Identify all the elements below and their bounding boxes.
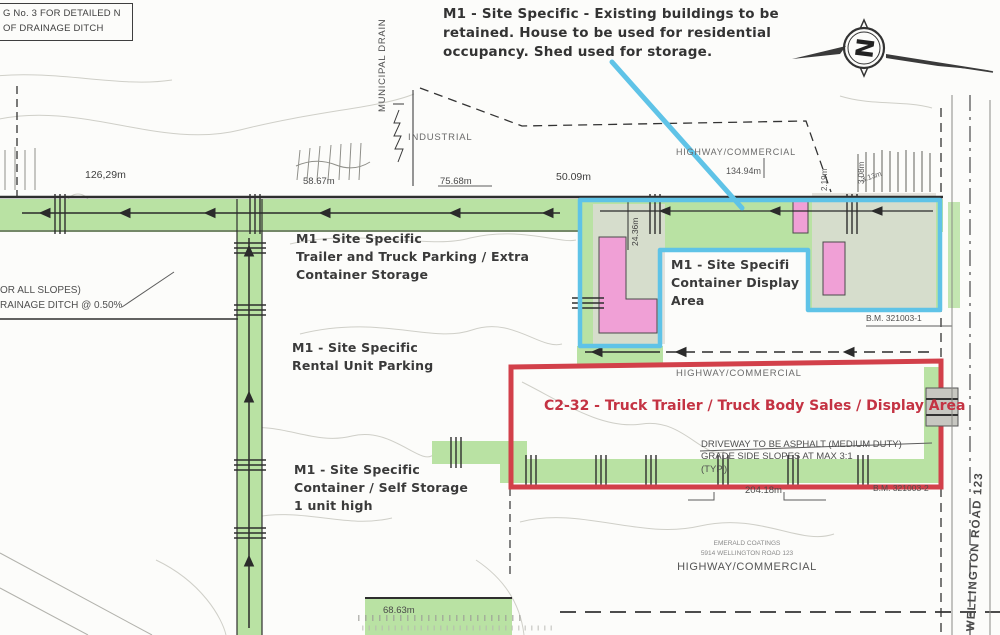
zone-self-storage-label: M1 - Site Specific Container / Self Stor… xyxy=(294,461,468,515)
note-line: RAINAGE DITCH @ 0.50% xyxy=(0,298,122,313)
slopes-ditch-note: OR ALL SLOPES) RAINAGE DITCH @ 0.50% xyxy=(0,283,122,313)
driveway-note: DRIVEWAY TO BE ASPHALT (MEDIUM DUTY) GRA… xyxy=(701,439,902,476)
drain-tree-symbol xyxy=(393,104,404,162)
roadside-hatch xyxy=(858,150,930,192)
dimension-126m: 126,29m xyxy=(85,169,126,181)
label-line: EMERALD COATINGS xyxy=(652,539,842,549)
benchmark-1-label: B.M. 321003-1 xyxy=(866,313,922,323)
zone-line: Area xyxy=(671,292,799,310)
note-line: retained. House to be used for residenti… xyxy=(443,24,779,43)
dimension-204m: 204.18m xyxy=(745,485,782,496)
zone-c2-32-label: C2-32 - Truck Trailer / Truck Body Sales… xyxy=(544,398,965,414)
municipal-drain-label: MUNICIPAL DRAIN xyxy=(377,19,388,112)
zone-line: 1 unit high xyxy=(294,497,468,515)
site-plan-drawing: N xyxy=(0,0,1000,635)
dimension-58m: 58.67m xyxy=(303,176,335,187)
zone-trailer-parking-label: M1 - Site Specific Trailer and Truck Par… xyxy=(296,230,529,284)
dimension-134m: 134.94m xyxy=(726,166,761,176)
highway-commercial-label-top: HIGHWAY/COMMERCIAL xyxy=(676,147,796,157)
industrial-zone-label: INDUSTRIAL xyxy=(408,132,472,143)
zone-line: M1 - Site Specifi xyxy=(671,256,799,274)
north-letter: N xyxy=(849,36,879,59)
slope-contours xyxy=(0,553,152,635)
label-line: 5914 WELLINGTON ROAD 123 xyxy=(652,549,842,559)
callout-line xyxy=(612,62,742,208)
note-line: (TYP.) xyxy=(701,464,902,476)
shed-building xyxy=(823,242,845,295)
dimension-24-36m: 24.36m xyxy=(630,218,640,246)
north-arrow-icon: N xyxy=(792,20,993,76)
note-line: M1 - Site Specific - Existing buildings … xyxy=(443,5,779,24)
note-line: DRIVEWAY TO BE ASPHALT (MEDIUM DUTY) xyxy=(701,439,902,451)
note-line: OR ALL SLOPES) xyxy=(0,283,122,298)
small-building xyxy=(793,197,808,233)
zone-line: Rental Unit Parking xyxy=(292,357,433,375)
highway-commercial-label-mid: HIGHWAY/COMMERCIAL xyxy=(676,368,802,379)
drainage-detail-note: G No. 3 FOR DETAILED N OF DRAINAGE DITCH xyxy=(0,3,133,41)
zone-line: Container Display xyxy=(671,274,799,292)
zone-line: Container / Self Storage xyxy=(294,479,468,497)
zone-rental-unit-label: M1 - Site Specific Rental Unit Parking xyxy=(292,339,433,375)
note-line: GRADE SIDE SLOPES AT MAX 3:1 xyxy=(701,451,902,463)
dimension-75m: 75.68m xyxy=(440,176,472,187)
zone-line: M1 - Site Specific xyxy=(296,230,529,248)
zone-line: Container Storage xyxy=(296,266,529,284)
emerald-coatings-label: EMERALD COATINGS 5914 WELLINGTON ROAD 12… xyxy=(652,539,842,573)
dimension-2-19m: 2.19m xyxy=(820,169,829,191)
label-line: HIGHWAY/COMMERCIAL xyxy=(652,561,842,573)
dimension-50m: 50.09m xyxy=(556,171,591,183)
benchmark-2-label: B.M. 321003-2 xyxy=(873,483,929,493)
detail-note-line: G No. 3 FOR DETAILED xyxy=(3,8,111,19)
zone-line: M1 - Site Specific xyxy=(294,461,468,479)
dimension-68m: 68.63m xyxy=(383,605,415,616)
zone-line: M1 - Site Specific xyxy=(292,339,433,357)
zone-container-display-label: M1 - Site Specifi Container Display Area xyxy=(671,256,799,310)
zone-line: Trailer and Truck Parking / Extra xyxy=(296,248,529,266)
existing-buildings-note: M1 - Site Specific - Existing buildings … xyxy=(443,5,779,62)
site-plan-canvas: N G No. 3 FOR DETAILED N OF DRAINAGE DIT… xyxy=(0,0,1000,635)
note-line: occupancy. Shed used for storage. xyxy=(443,43,779,62)
